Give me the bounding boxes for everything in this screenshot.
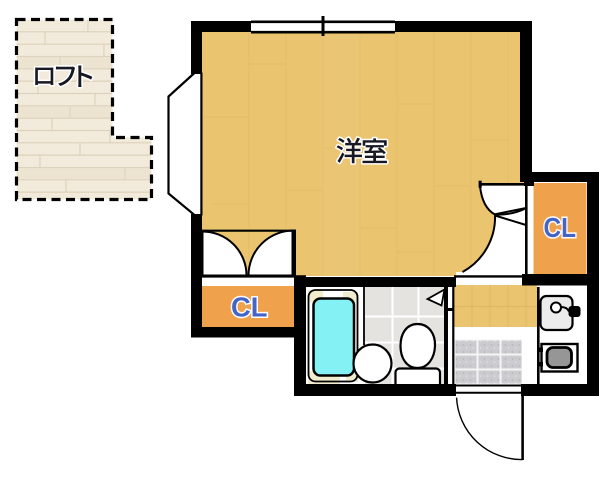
svg-text:CL: CL [544,212,577,243]
svg-text:CL: CL [231,292,268,323]
